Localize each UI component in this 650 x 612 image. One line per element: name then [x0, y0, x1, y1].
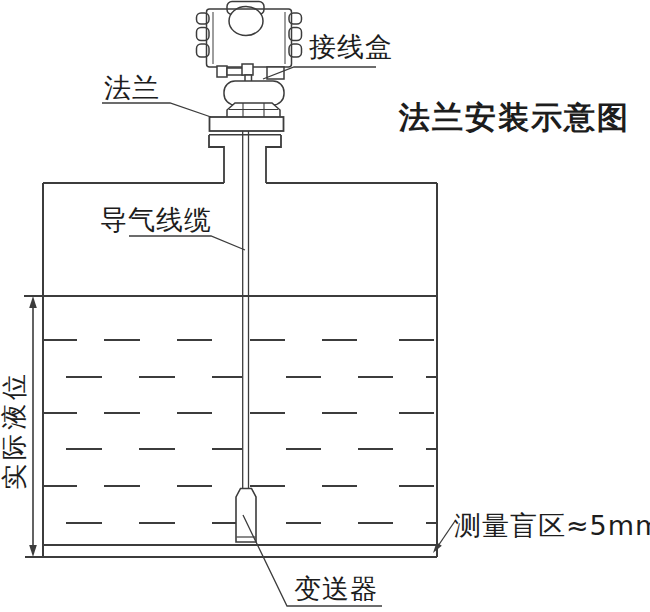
transmitter-head: [197, 2, 302, 120]
head-bracket-bar: [227, 68, 243, 75]
head-bracket-endcap: [217, 66, 227, 77]
flange-plate: [210, 117, 284, 131]
junction-box-label: 接线盒: [309, 33, 393, 61]
blind-zone-label: 测量盲区≈5mm: [454, 512, 650, 540]
head-dome: [229, 7, 263, 36]
flange-leader: [102, 103, 211, 117]
probe-body: [236, 489, 256, 543]
actual-level-label: 实际液位: [1, 360, 31, 500]
head-bracket-knob: [242, 64, 253, 75]
diagram-title: 法兰安装示意图: [399, 101, 630, 134]
tank: [25, 135, 437, 557]
head-coupling: [224, 81, 284, 105]
flange-installation-diagram: 法兰安装示意图 接线盒 法兰 导气线缆 实际液位 变送器 测量盲区≈5mm: [0, 0, 650, 612]
flange-label: 法兰: [104, 74, 160, 102]
head-right-step: [267, 67, 284, 79]
air-guide-cable-label: 导气线缆: [100, 206, 212, 234]
air-cable-leader: [129, 236, 245, 250]
arrowhead-down: [29, 545, 37, 557]
arrowhead-up: [29, 296, 37, 308]
blind-zone-arrow-line: [438, 521, 455, 546]
air-guide-cable-line: [243, 121, 249, 490]
tank-outline: [25, 183, 437, 557]
probe: [236, 489, 256, 543]
transmitter-label: 变送器: [294, 575, 378, 603]
